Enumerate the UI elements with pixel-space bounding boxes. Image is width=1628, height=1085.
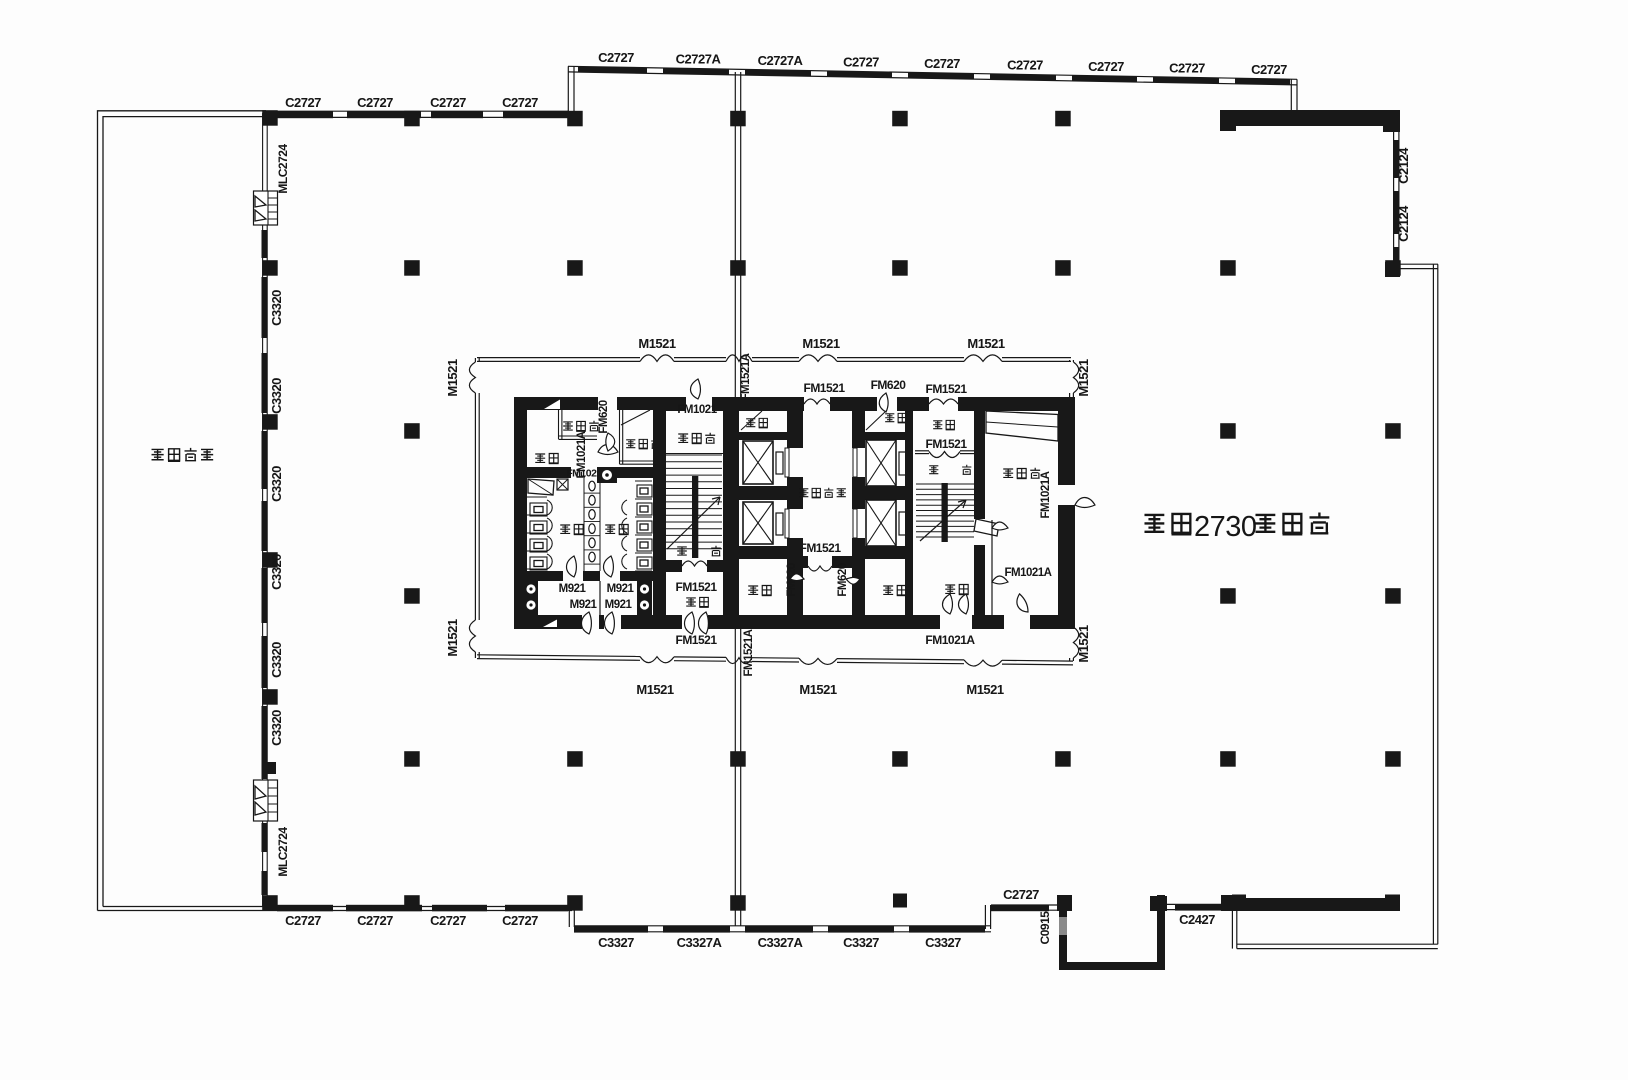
svg-text:M1521: M1521 <box>1076 625 1091 663</box>
svg-text:M921: M921 <box>570 599 598 611</box>
svg-text:M1521: M1521 <box>638 336 676 351</box>
svg-text:C3320: C3320 <box>269 710 284 746</box>
svg-text:C2727: C2727 <box>285 913 321 928</box>
svg-text:C3327A: C3327A <box>677 935 723 950</box>
svg-text:MLC2724: MLC2724 <box>276 144 290 194</box>
svg-text:C2727: C2727 <box>357 95 393 110</box>
svg-text:C3327A: C3327A <box>758 935 804 950</box>
svg-text:C2124: C2124 <box>1396 205 1411 242</box>
svg-text:M1521: M1521 <box>1076 359 1091 397</box>
svg-text:C3327: C3327 <box>925 935 961 950</box>
svg-text:FM1021A: FM1021A <box>925 633 975 647</box>
svg-text:MLC2724: MLC2724 <box>276 827 290 877</box>
svg-text:FM1021A: FM1021A <box>1005 567 1052 579</box>
svg-text:C2727: C2727 <box>1007 57 1043 72</box>
svg-text:C2727A: C2727A <box>758 53 804 68</box>
svg-text:FM1521: FM1521 <box>675 580 717 594</box>
svg-text:M921: M921 <box>605 599 633 611</box>
svg-text:C2727: C2727 <box>502 913 538 928</box>
svg-text:2730: 2730 <box>1194 511 1257 543</box>
svg-text:FM1521A: FM1521A <box>740 353 752 400</box>
svg-text:C2727A: C2727A <box>676 52 722 67</box>
svg-text:FM1521A: FM1521A <box>743 629 755 676</box>
svg-text:C2124: C2124 <box>1396 147 1411 184</box>
svg-text:FM1521: FM1521 <box>803 381 845 395</box>
svg-text:FM1521: FM1521 <box>925 437 967 451</box>
svg-text:FM1521: FM1521 <box>799 541 841 555</box>
svg-text:C2727: C2727 <box>598 50 634 65</box>
svg-text:C2727: C2727 <box>285 95 321 110</box>
svg-text:M1521: M1521 <box>636 682 674 697</box>
svg-text:M921: M921 <box>559 583 587 595</box>
svg-text:FM1521: FM1521 <box>925 382 967 396</box>
svg-text:C2727: C2727 <box>502 95 538 110</box>
svg-text:C2727: C2727 <box>843 55 879 70</box>
svg-text:M1521: M1521 <box>445 619 460 657</box>
svg-text:M1521: M1521 <box>799 682 837 697</box>
svg-text:C2727: C2727 <box>1251 62 1287 77</box>
svg-text:C2727: C2727 <box>1003 887 1039 902</box>
svg-text:M921: M921 <box>607 583 635 595</box>
svg-text:FM620: FM620 <box>871 378 907 392</box>
svg-text:C2727: C2727 <box>430 913 466 928</box>
svg-text:M1521: M1521 <box>445 359 460 397</box>
svg-text:C3320: C3320 <box>269 554 284 590</box>
svg-text:C3327: C3327 <box>843 935 879 950</box>
svg-text:M1521: M1521 <box>802 336 840 351</box>
svg-text:FM1521: FM1521 <box>675 633 717 647</box>
svg-text:FM620: FM620 <box>598 400 610 433</box>
svg-text:C2727: C2727 <box>357 913 393 928</box>
svg-text:C2727: C2727 <box>1169 60 1205 75</box>
svg-text:M1521: M1521 <box>967 336 1005 351</box>
svg-text:M1521: M1521 <box>966 682 1004 697</box>
svg-text:C3320: C3320 <box>269 378 284 414</box>
svg-text:C0915: C0915 <box>1038 911 1052 945</box>
svg-text:C2727: C2727 <box>924 56 960 71</box>
svg-text:FM1021: FM1021 <box>566 468 602 480</box>
svg-text:FM1021A: FM1021A <box>1040 471 1052 518</box>
svg-text:C3320: C3320 <box>269 290 284 326</box>
svg-text:C2727: C2727 <box>430 95 466 110</box>
svg-text:C3320: C3320 <box>269 466 284 502</box>
svg-text:C3320: C3320 <box>269 642 284 678</box>
svg-text:C2427: C2427 <box>1179 912 1215 927</box>
svg-text:C3327: C3327 <box>598 935 634 950</box>
svg-text:C2727: C2727 <box>1088 59 1124 74</box>
svg-text:FM1021: FM1021 <box>677 404 717 416</box>
